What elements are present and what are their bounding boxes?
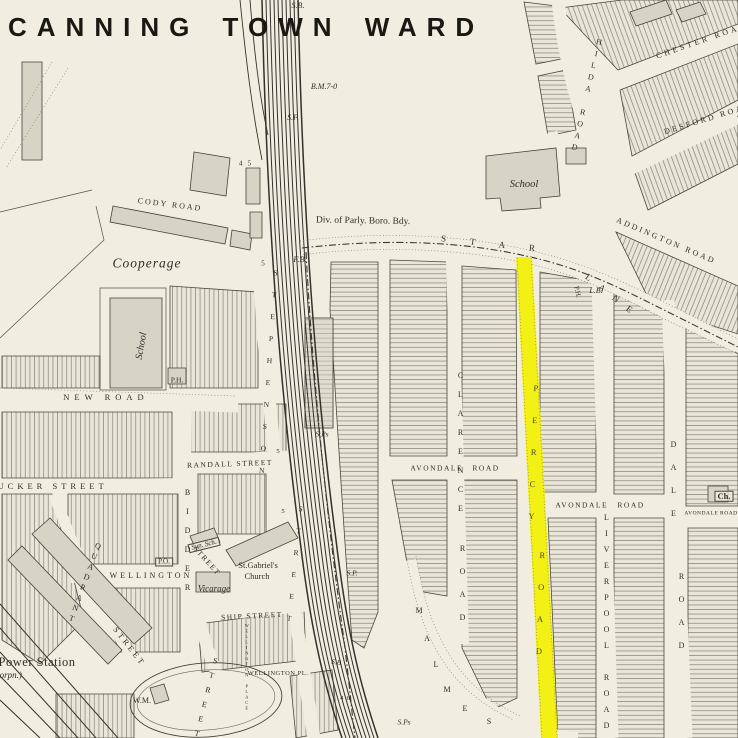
poi-label-school-east: School: [510, 180, 539, 191]
map-canvas[interactable]: CANNING TOWN WARD S.B. B.M.7-0 S.P. F.B.…: [0, 0, 738, 738]
road-letter-malmesbury-3: L: [434, 661, 439, 669]
road-letter-malmesbury-6: S: [487, 718, 491, 726]
road-label-avondale-east: AVONDALE ROAD: [684, 511, 737, 517]
boundary-label: Div. of Parly. Boro. Bdy.: [316, 216, 410, 227]
poi-label-power-station-sub: (West Ham Corpn.): [0, 671, 22, 680]
road-label-dale-road: ROAD: [677, 572, 685, 664]
road-label-liverpool: LIVERPOOL ROAD: [602, 513, 610, 737]
poi-label-st-gabriels-line2: Church: [244, 572, 269, 581]
poi-label-ph: P.H.: [171, 376, 184, 384]
road-label-new: NEW ROAD: [63, 393, 148, 402]
footbridge-label: F.B.: [293, 255, 307, 264]
poi-label-vicarage: Vicarage: [198, 585, 230, 594]
poi-label-po: P.O.: [155, 558, 173, 567]
poi-label-power-station: The Power Station: [0, 656, 76, 669]
road-label-avondale-mid: AVONDALE ROAD: [555, 501, 644, 509]
road-letter-malmesbury-5: E: [463, 705, 468, 713]
rail-number-46: 4 6: [340, 696, 350, 703]
road-label-wellington-place-vert: WELLINGTON PLACE: [244, 623, 249, 711]
road-letter-malmesbury-1: M: [415, 607, 422, 615]
road-label-clarence: CLARENCE: [456, 371, 464, 523]
rail-label-sps-2: S.Ps: [397, 718, 410, 726]
boundary-mark-2: 5: [281, 509, 284, 516]
road-label-wellington: WELLINGTON: [110, 572, 193, 580]
poi-label-ph-rotated: P.H.: [572, 286, 581, 299]
rail-label-sp-mid: S.P.: [346, 569, 357, 577]
road-letter-malmesbury-2: A: [424, 635, 430, 643]
road-letter-malmesbury-4: M: [443, 686, 450, 694]
rail-number-5: 5: [261, 261, 265, 268]
road-label-bidder: BIDDER: [183, 488, 191, 602]
map-linework: [0, 0, 738, 738]
road-label-clarence-road: ROAD: [458, 544, 466, 636]
rail-label-sb-top: S.B.: [292, 2, 305, 10]
rail-label-sp-top: S.P.: [287, 114, 299, 122]
map-title: CANNING TOWN WARD: [8, 12, 484, 43]
road-label-wellington-pl: WELLINGTON PL.: [248, 671, 309, 678]
benchmark-label: B.M.7-0: [311, 83, 337, 91]
road-label-avondale-west: AVONDALE ROAD: [410, 464, 499, 472]
place-label-cooperage: Cooperage: [113, 256, 182, 270]
road-label-dale: DALE: [669, 440, 677, 532]
rail-number-45: 4 5: [239, 161, 251, 168]
poi-label-church: Ch.: [715, 491, 734, 502]
poi-label-wm: W.M.: [133, 697, 151, 705]
rail-label-sps-1: S.Ps: [315, 430, 328, 438]
boundary-mark-1: 5: [276, 449, 279, 456]
road-label-tucker: TUCKER STREET: [0, 482, 108, 491]
poi-label-st-gabriels: St.Gabriel's: [238, 561, 278, 570]
poi-label-letter-box: L.B.: [589, 287, 602, 295]
